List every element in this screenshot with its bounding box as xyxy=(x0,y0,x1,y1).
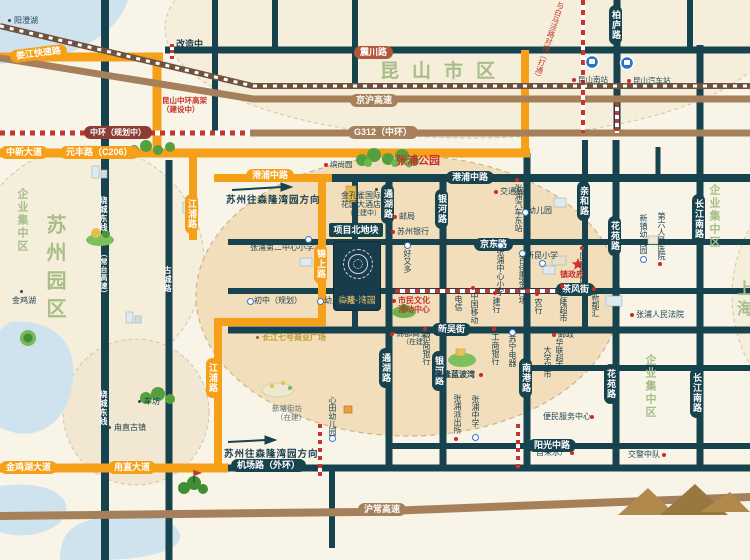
poi-ring xyxy=(329,435,336,442)
area-yangcheng-lake: 阳澄湖 xyxy=(14,15,38,26)
poi-icbc-bank: 工商银行 xyxy=(490,333,501,365)
poi-dot xyxy=(8,19,11,22)
poi-dot xyxy=(592,287,596,291)
poi-zhangpu-east-bus-station: 张浦汽车东站 xyxy=(513,184,524,232)
poi-dot xyxy=(570,451,574,455)
poi-dot xyxy=(390,332,394,336)
road-gangpu-mid-east: 港浦中路 xyxy=(446,171,494,184)
road-jinjihu-avenue: 金鸡湖大道 xyxy=(0,461,57,474)
poi-changjiang7-plaza: 长江七号商业广场 xyxy=(262,332,326,343)
poi-binshangyuan: 缤尚园 xyxy=(330,159,353,170)
poi-xinzhen-kindergarten: 新镇幼儿园 xyxy=(638,214,649,254)
road-gangpu-mid-west: 港浦中路 xyxy=(246,169,294,182)
poi-dot xyxy=(658,262,662,266)
poi-ccb-bank: 建行 xyxy=(491,297,502,313)
poi-dot xyxy=(479,373,483,377)
poi-dot xyxy=(580,246,584,250)
poi-police-station: 张浦派出所 xyxy=(452,394,463,434)
road-g312: G312（中环） xyxy=(348,126,418,139)
poi-xinduhui: 新都汇 xyxy=(590,293,601,317)
poi-baijiahui-plaza: 百佳惠金广场 xyxy=(517,256,528,304)
area-suzhou-park: 苏州园区 xyxy=(40,214,69,326)
road-qinhe: 亲和路 xyxy=(577,181,590,221)
road-jingdong: 京东路 xyxy=(474,238,513,251)
note-viaduct: 昆山中环高架（建设中） xyxy=(162,96,220,115)
road-huayuan-north: 花苑路 xyxy=(608,216,621,256)
note-direction-top: 苏州往森隆湾园方向 xyxy=(226,192,321,206)
poi-suning: 苏宁电器 xyxy=(507,335,518,367)
road-gucheng: 古城路 xyxy=(162,266,173,293)
road-zhonghuan-planned: 中环（规划中） xyxy=(84,126,152,139)
poi-hualian-market: 华联超市 xyxy=(554,338,565,370)
road-jiangpu-south: 江浦路 xyxy=(206,358,219,398)
poi-dot xyxy=(572,78,576,82)
area-zhangpu-park: 张浦公园 xyxy=(396,152,440,168)
road-huchang-expressway: 沪常高速 xyxy=(358,503,406,516)
poi-xinkun-primary: 新昆小学 xyxy=(526,250,558,261)
area-jinji-lake: 金鸡湖 xyxy=(12,295,36,306)
poi-dot xyxy=(423,327,427,331)
road-tonghu-south: 通湖路 xyxy=(379,348,392,388)
poi-dot xyxy=(392,299,396,303)
road-zhenchuan: 震川路 xyxy=(354,46,393,59)
road-jinshang: 锦上路 xyxy=(314,244,327,284)
poi-dot xyxy=(393,215,397,219)
poi-abc-bank: 农行 xyxy=(533,298,544,314)
road-changjiang-south-south: 长江南路 xyxy=(690,368,703,418)
road-yuanfeng: 元丰路（C206） xyxy=(60,146,139,159)
note-direction-bottom: 苏州往森隆湾园方向 xyxy=(224,446,319,460)
road-tonghu-north: 通湖路 xyxy=(381,184,394,224)
road-bailu: 柏庐路 xyxy=(609,5,622,45)
poi-ring xyxy=(317,298,324,305)
poi-haoyouduo: 好又多 xyxy=(402,249,413,273)
poi-dot xyxy=(630,313,634,317)
poi-water-plant: 自来水厂 xyxy=(536,447,568,458)
poi-ring xyxy=(539,260,546,267)
road-yinhe-north: 银河路 xyxy=(435,189,448,229)
poi-civic-center-line2: 活动中心 xyxy=(398,304,430,315)
poi-telecom: 电信 xyxy=(453,295,464,311)
poi-xintian-kindergarten: 心田幼儿园 xyxy=(327,396,338,436)
road-jiangpu-north: 江浦路 xyxy=(185,194,198,234)
station-kunshan-south: 昆山南站 xyxy=(578,74,608,85)
poi-convenience-center: 便民服务中心 xyxy=(543,411,591,422)
road-jinghu-expressway: 京沪高速 xyxy=(350,94,398,107)
poi-dot xyxy=(454,437,458,441)
road-nangang: 南港路 xyxy=(519,358,532,398)
poi-dot xyxy=(492,327,496,331)
poi-dot xyxy=(20,290,23,293)
location-map: 昆山市区 苏州园区 企业集中区 企业集中区 企业集中区 上海 阳澄湖 金鸡湖 张… xyxy=(0,0,750,560)
poi-senlong-lanbowan: 森隆蓝波湾 xyxy=(435,369,475,380)
poi-state-grid: 国家电网 xyxy=(578,252,589,284)
poi-traffic-police: 交警中队 xyxy=(628,449,660,460)
poi-dot xyxy=(324,163,328,167)
road-raocheng-paren: （常台高速） xyxy=(98,250,108,298)
poi-hotel-line3: （在建中） xyxy=(346,208,381,218)
poi-china-mobile: 中国移动 xyxy=(469,292,480,324)
area-enterprise-right: 企业集中区 xyxy=(706,184,722,249)
road-luzhi-avenue: 甪直大道 xyxy=(108,461,156,474)
project-north-plot: 项目北地块 xyxy=(329,223,383,237)
poi-dot xyxy=(627,79,631,83)
poi-dot xyxy=(662,453,666,457)
road-raocheng-east-north: 绕城东线 xyxy=(98,196,109,232)
poi-dot xyxy=(552,333,556,337)
poi-chefang: 车坊 xyxy=(144,396,160,407)
project-emblem-icon xyxy=(353,259,363,269)
note-renovating: 改造中 xyxy=(176,37,203,50)
poi-cmb-bank: 招商银行 xyxy=(421,333,432,365)
poi-daxue-market: 大学超市 xyxy=(542,346,553,378)
poi-ring xyxy=(247,298,254,305)
poi-suzhou-bank: 苏州银行 xyxy=(397,226,429,237)
poi-dot xyxy=(471,286,475,290)
poi-henglong-market: 恒隆超市 xyxy=(558,290,569,322)
area-kunshan-city: 昆山市区 xyxy=(380,56,508,83)
poi-ring xyxy=(404,242,411,249)
poi-post-office: 邮局 xyxy=(399,211,415,222)
road-huayuan-south: 花苑路 xyxy=(604,364,617,404)
poi-people-court: 张浦人民法院 xyxy=(636,309,684,320)
poi-dot xyxy=(494,190,498,194)
poi-ring xyxy=(640,256,647,263)
road-jichang-outer-ring: 机场路（外环） xyxy=(231,459,306,472)
poi-dot xyxy=(138,400,141,403)
poi-dot xyxy=(515,178,519,182)
poi-zhangpu-central-primary: 张浦中心小学 xyxy=(495,248,506,296)
poi-dot xyxy=(391,230,395,234)
poi-dot xyxy=(455,289,459,293)
poi-kindergarten: 幼儿园 xyxy=(528,205,552,216)
poi-dot xyxy=(256,336,259,339)
area-enterprise-bottom-right: 企业集中区 xyxy=(642,354,658,419)
poi-dot xyxy=(108,426,111,429)
poi-sixth-peoples-hospital: 第六人民医院 xyxy=(656,212,667,260)
road-raocheng-east-south: 绕城东线 xyxy=(98,390,109,426)
poi-middle-school-planned: 初中（规划） xyxy=(254,295,302,306)
poi-ring xyxy=(472,434,479,441)
road-changjiang-south-north: 长江南路 xyxy=(692,194,705,244)
poi-dot xyxy=(560,284,564,288)
area-enterprise-left: 企业集中区 xyxy=(14,188,30,253)
station-kunshan-bus: 昆山汽车站 xyxy=(633,75,671,86)
poi-kindergarten-planned: 幼儿园（规划） xyxy=(324,295,380,306)
road-zhongxin-avenue: 中新大道 xyxy=(0,146,48,159)
poi-luzhi-ancient-town: 甪直古镇 xyxy=(114,422,146,433)
area-shanghai: 上海 xyxy=(730,280,750,320)
poi-xintang-line2: （在建） xyxy=(276,412,306,423)
poi-zhangpu-no2-primary: 张浦第二中心小学 xyxy=(250,242,314,253)
poi-zhangpu-middle-school: 张浦中学 xyxy=(470,395,481,427)
poi-dot xyxy=(535,292,539,296)
